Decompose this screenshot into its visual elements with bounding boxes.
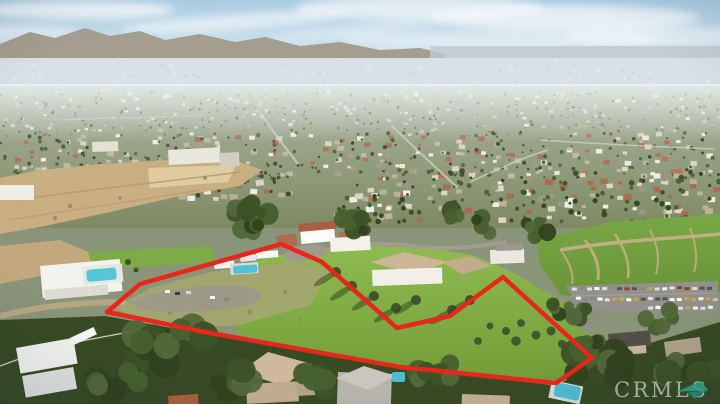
watermark: CRMLS	[614, 378, 708, 402]
aerial-photo: CRMLS	[0, 0, 720, 404]
vignette	[0, 0, 720, 404]
aerial-photo-canvas: CRMLS	[0, 0, 720, 404]
